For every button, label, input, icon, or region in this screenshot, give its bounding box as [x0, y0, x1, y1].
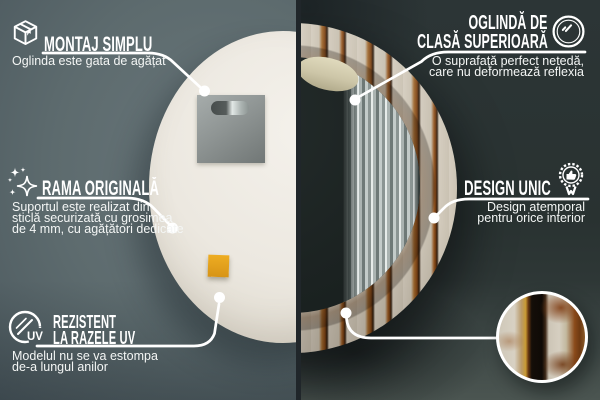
oglinda-title-line1: OGLINDĂ DE	[469, 13, 548, 33]
uv-protection-icon: UV	[6, 308, 48, 350]
design-title: DESIGN UNIC	[464, 178, 551, 199]
mirror-glass	[301, 57, 420, 313]
orange-sticker	[208, 255, 230, 278]
award-badge-icon	[552, 160, 590, 202]
texture-detail-circle	[496, 291, 588, 383]
bracket-slot	[211, 101, 249, 115]
package-box-icon	[10, 17, 41, 48]
uv-title-line2: LA RAZELE UV	[53, 329, 135, 347]
oglinda-subtitle: O suprafață perfect netedă, care nu defo…	[429, 56, 584, 78]
callout-design-unic: DESIGN UNIC	[411, 178, 551, 199]
callout-oglinda-superioara: OGLINDĂ DE	[420, 13, 548, 33]
uv-badge-text: UV	[27, 331, 43, 343]
round-mirror-icon	[550, 13, 587, 50]
oglinda-title-line2: CLASĂ SUPERIOARĂ	[417, 32, 548, 52]
rama-subtitle: Suportul este realizat din sticlă securi…	[12, 202, 184, 235]
montaj-subtitle: Oglinda este gata de agățat	[12, 56, 166, 67]
uv-title-line2-wrap: LA RAZELE UV	[53, 329, 186, 347]
design-subtitle: Design atemporal pentru orice interior	[477, 202, 585, 224]
sparkles-icon	[6, 165, 42, 201]
callout-montaj-simplu: MONTAJ SIMPLU	[44, 34, 219, 55]
oglinda-title-line2-wrap: CLASĂ SUPERIOARĂ	[337, 32, 548, 52]
callout-rama-originala: RAMA ORIGINALĂ	[42, 178, 231, 199]
rama-title: RAMA ORIGINALĂ	[42, 178, 159, 199]
curtain-reflection	[343, 57, 420, 313]
uv-subtitle: Modelul nu se va estompa de-a lungul ani…	[12, 351, 158, 373]
mirror-product-infographic: MONTAJ SIMPLU Oglinda este gata de agăța…	[0, 0, 600, 400]
montaj-title: MONTAJ SIMPLU	[44, 34, 152, 55]
photo-divider	[296, 0, 301, 400]
hanging-bracket	[197, 95, 265, 163]
